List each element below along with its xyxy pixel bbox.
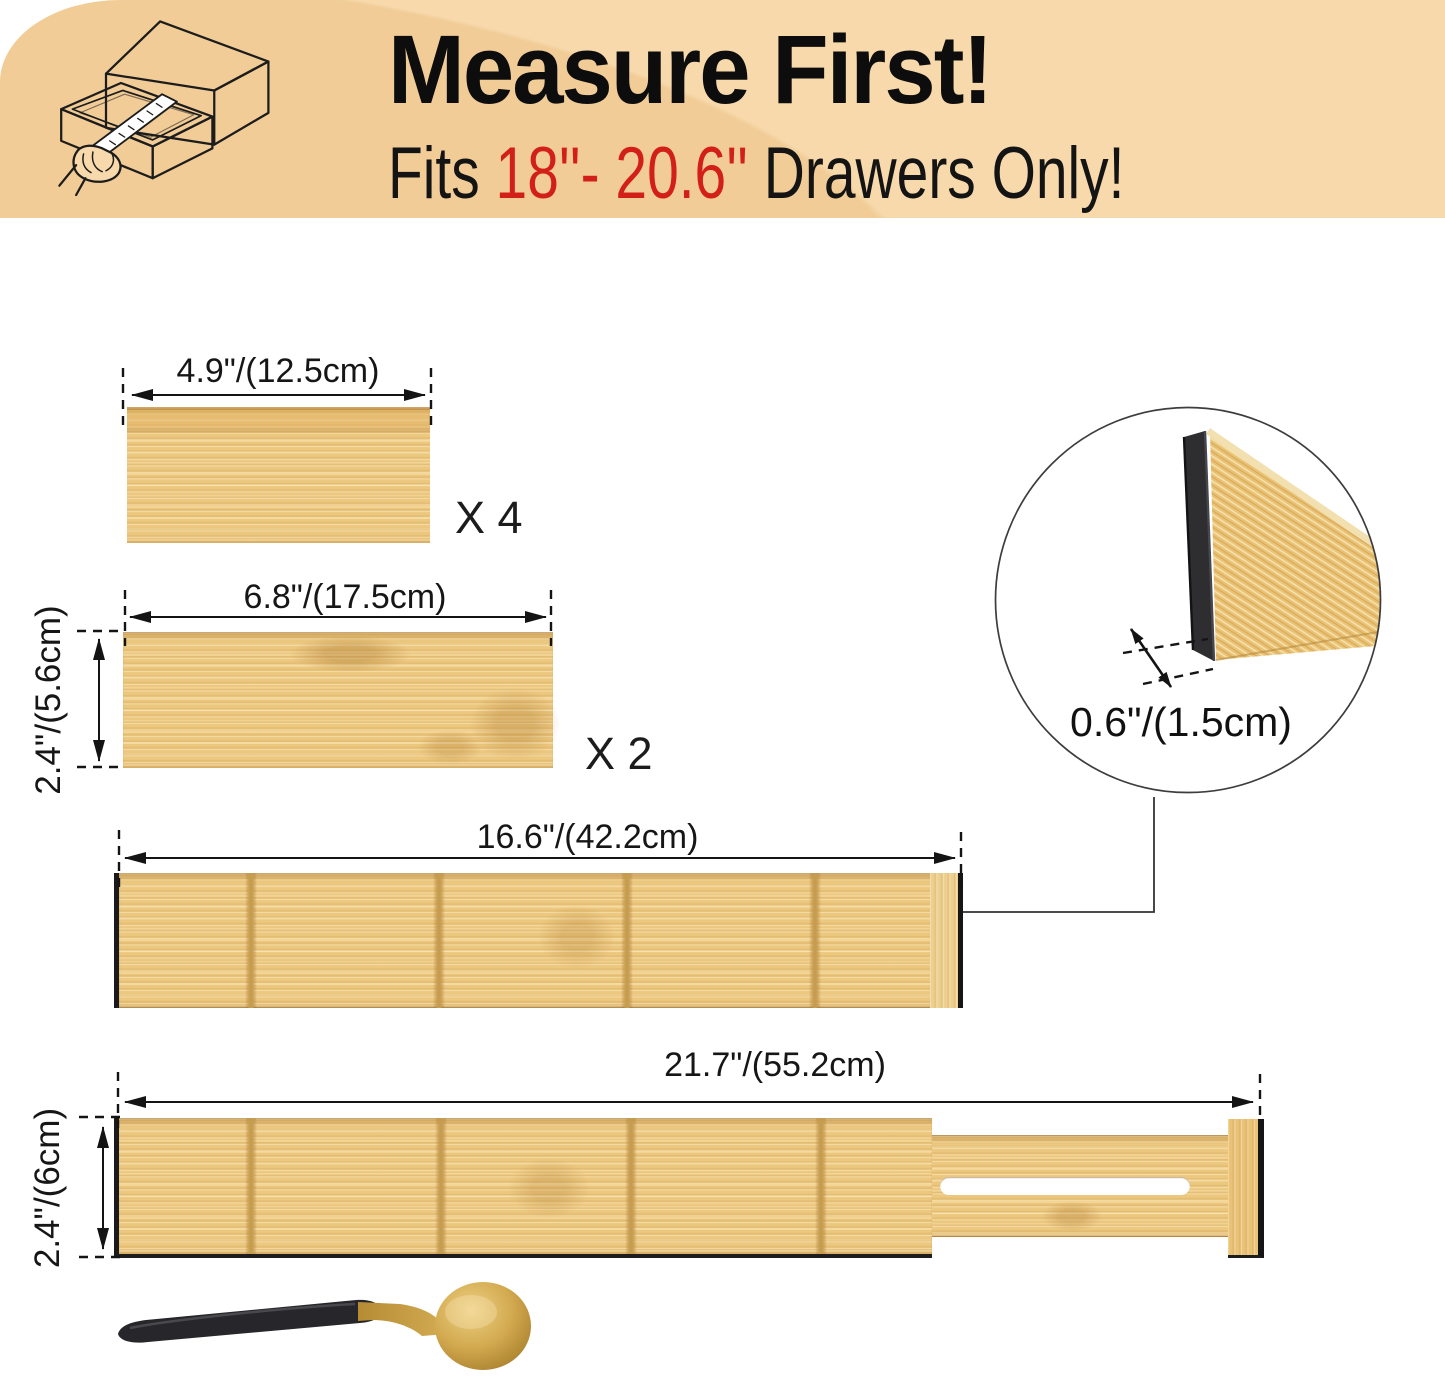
divider-groove bbox=[621, 873, 633, 1008]
divider-groove bbox=[625, 1118, 637, 1254]
thickness-inset: 0.6"/(1.5cm) bbox=[991, 403, 1385, 797]
promo-banner: Measure First! Fits 18''- 20.6'' Drawers… bbox=[0, 0, 1445, 218]
rail-adjustment-slot bbox=[940, 1177, 1190, 1195]
banner-title: Measure First! bbox=[388, 14, 991, 126]
wood-knot bbox=[470, 688, 560, 760]
divider-groove bbox=[815, 1118, 827, 1254]
quantity-label-small: X 4 bbox=[455, 492, 523, 544]
product-measurement-diagram: Measure First! Fits 18''- 20.6'' Drawers… bbox=[0, 0, 1445, 1379]
length-label-extended: 21.7"/(55.2cm) bbox=[250, 1046, 1300, 1085]
wood-knot bbox=[1042, 1201, 1102, 1231]
divider-panel-medium bbox=[123, 632, 553, 768]
length-label-small: 4.9"/(12.5cm) bbox=[128, 352, 428, 391]
divider-groove bbox=[809, 873, 821, 1008]
banner-subtitle: Fits 18''- 20.6'' Drawers Only! bbox=[388, 132, 1124, 215]
fits-prefix: Fits bbox=[388, 133, 496, 214]
divider-groove bbox=[245, 873, 257, 1008]
divider-long bbox=[114, 873, 963, 1008]
height-label-extended: 2.4"/(6cm) bbox=[28, 1108, 68, 1268]
drawer-measuring-icon bbox=[22, 6, 274, 202]
wood-knot bbox=[418, 730, 482, 764]
divider-end-cap bbox=[930, 873, 958, 1008]
divider-groove bbox=[245, 1118, 257, 1254]
spoon-handle bbox=[118, 1300, 381, 1343]
divider-groove bbox=[435, 1118, 447, 1254]
divider-extended-main bbox=[114, 1118, 932, 1258]
length-label-medium: 6.8"/(17.5cm) bbox=[130, 578, 560, 617]
wood-knot bbox=[539, 905, 615, 969]
fits-suffix: Drawers Only! bbox=[748, 133, 1125, 214]
divider-extension-rail bbox=[932, 1135, 1228, 1237]
wood-knot bbox=[509, 1158, 589, 1218]
spoon-image bbox=[100, 1258, 560, 1378]
divider-groove bbox=[433, 873, 445, 1008]
divider-extension-end-cap bbox=[1228, 1119, 1264, 1258]
wood-knot bbox=[290, 636, 410, 672]
height-label-medium: 2.4"/(5.6cm) bbox=[29, 605, 69, 794]
length-label-long: 16.6"/(42.2cm) bbox=[165, 818, 1010, 857]
thickness-label: 0.6"/(1.5cm) bbox=[1070, 699, 1292, 745]
fits-range: 18''- 20.6'' bbox=[496, 133, 748, 214]
spoon-neck bbox=[358, 1302, 446, 1336]
quantity-label-medium: X 2 bbox=[585, 728, 653, 780]
divider-panel-small bbox=[127, 407, 430, 543]
